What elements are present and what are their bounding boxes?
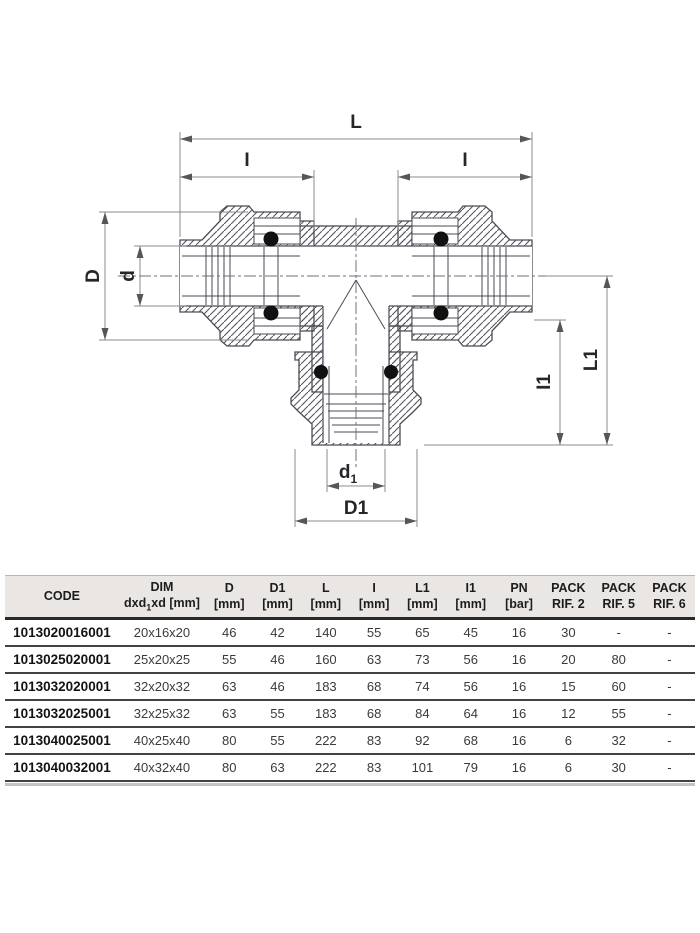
cell-code: 1013020016001 (5, 619, 119, 647)
table-row: 101302502000125x20x255546160637356162080… (5, 646, 695, 673)
cell: 183 (302, 700, 350, 727)
cell: 45 (447, 619, 495, 647)
cell: 68 (350, 700, 398, 727)
cell: 68 (350, 673, 398, 700)
cell: 83 (350, 727, 398, 754)
col-header-pack6: PACKRIF. 6 (644, 576, 695, 619)
cell-dim: 20x16x20 (119, 619, 205, 647)
table-row: 101304003200140x32x408063222831017916630… (5, 754, 695, 781)
cell: 20 (543, 646, 593, 673)
cell: 55 (205, 646, 253, 673)
col-header-D: D[mm] (205, 576, 253, 619)
cell: 183 (302, 673, 350, 700)
dim-label-D1: D1 (344, 498, 369, 519)
dim-label-I-right: I (462, 150, 467, 171)
o-ring-dot (434, 232, 449, 247)
cell: 16 (495, 700, 543, 727)
cell: 222 (302, 727, 350, 754)
spec-table-section: CODE DIM dxd1xd [mm] D[mm] D1[mm] L[mm] … (5, 575, 695, 786)
o-ring-dot (434, 306, 449, 321)
cell: 64 (447, 700, 495, 727)
o-ring-dot (264, 232, 279, 247)
cell: - (644, 754, 695, 781)
cell: 12 (543, 700, 593, 727)
cell: 55 (253, 700, 301, 727)
cell-dim: 32x20x32 (119, 673, 205, 700)
cell-code: 1013040025001 (5, 727, 119, 754)
o-ring-dot (314, 365, 328, 379)
cell: 65 (398, 619, 446, 647)
technical-drawing: L I I D d L1 I1 d1 D1 (0, 0, 700, 560)
cell: 6 (543, 754, 593, 781)
cell: 60 (594, 673, 644, 700)
cell-dim: 40x25x40 (119, 727, 205, 754)
cell: 6 (543, 727, 593, 754)
catalog-page: L I I D d L1 I1 d1 D1 CODE DIM (0, 0, 700, 933)
cell: 74 (398, 673, 446, 700)
cell-code: 1013040032001 (5, 754, 119, 781)
col-header-PN: PN[bar] (495, 576, 543, 619)
cell: - (644, 646, 695, 673)
cell: 80 (205, 727, 253, 754)
table-header-row: CODE DIM dxd1xd [mm] D[mm] D1[mm] L[mm] … (5, 576, 695, 619)
cell: 46 (253, 646, 301, 673)
cell-dim: 32x25x32 (119, 700, 205, 727)
dim-label-I1: I1 (534, 374, 555, 390)
col-header-dim: DIM dxd1xd [mm] (119, 576, 205, 619)
cell: 80 (205, 754, 253, 781)
spec-table: CODE DIM dxd1xd [mm] D[mm] D1[mm] L[mm] … (5, 575, 695, 782)
cell: 30 (543, 619, 593, 647)
cell: 73 (398, 646, 446, 673)
cell: 16 (495, 754, 543, 781)
cell: - (644, 673, 695, 700)
cell: 68 (447, 727, 495, 754)
cell: 32 (594, 727, 644, 754)
cell: 222 (302, 754, 350, 781)
cell: 30 (594, 754, 644, 781)
cell: 101 (398, 754, 446, 781)
cell: 63 (350, 646, 398, 673)
dim-label-L1: L1 (581, 348, 602, 371)
col-header-pack2: PACKRIF. 2 (543, 576, 593, 619)
cell: 16 (495, 727, 543, 754)
cell: 84 (398, 700, 446, 727)
o-ring-dot (264, 306, 279, 321)
cell: 55 (253, 727, 301, 754)
cell-code: 1013032025001 (5, 700, 119, 727)
col-header-L1: L1[mm] (398, 576, 446, 619)
cell: 63 (205, 673, 253, 700)
cell: 83 (350, 754, 398, 781)
cell: 140 (302, 619, 350, 647)
col-header-I: I[mm] (350, 576, 398, 619)
table-row: 101304002500140x25x40805522283926816632- (5, 727, 695, 754)
table-row: 101303202500132x25x326355183688464161255… (5, 700, 695, 727)
col-header-I1: I1[mm] (447, 576, 495, 619)
cell: - (644, 700, 695, 727)
cell-dim: 40x32x40 (119, 754, 205, 781)
cell: 46 (205, 619, 253, 647)
col-header-code: CODE (5, 576, 119, 619)
cell: 63 (205, 700, 253, 727)
table-row: 101303202000132x20x326346183687456161560… (5, 673, 695, 700)
col-header-pack5: PACKRIF. 5 (594, 576, 644, 619)
cell: 16 (495, 646, 543, 673)
cell: 55 (350, 619, 398, 647)
cell-code: 1013032020001 (5, 673, 119, 700)
cell-dim: 25x20x25 (119, 646, 205, 673)
cell: 79 (447, 754, 495, 781)
col-header-L: L[mm] (302, 576, 350, 619)
cell: 56 (447, 646, 495, 673)
cell: 56 (447, 673, 495, 700)
cell: 55 (594, 700, 644, 727)
cell: 92 (398, 727, 446, 754)
dim-label-d1: d1 (339, 462, 358, 486)
o-ring-dot (384, 365, 398, 379)
cell: 63 (253, 754, 301, 781)
table-bottom-rule (5, 783, 695, 786)
dim-label-d: d (118, 270, 139, 282)
cell: 160 (302, 646, 350, 673)
cell: - (644, 619, 695, 647)
dim-label-D: D (83, 269, 104, 283)
cell: 16 (495, 673, 543, 700)
cell-code: 1013025020001 (5, 646, 119, 673)
cell: 16 (495, 619, 543, 647)
cell: 15 (543, 673, 593, 700)
cell: - (644, 727, 695, 754)
table-row: 101302001600120x16x2046421405565451630-- (5, 619, 695, 647)
dim-label-I-left: I (244, 150, 249, 171)
cell: 80 (594, 646, 644, 673)
cell: 42 (253, 619, 301, 647)
cell: 46 (253, 673, 301, 700)
cell: - (594, 619, 644, 647)
col-header-D1: D1[mm] (253, 576, 301, 619)
dim-label-L: L (350, 112, 362, 133)
